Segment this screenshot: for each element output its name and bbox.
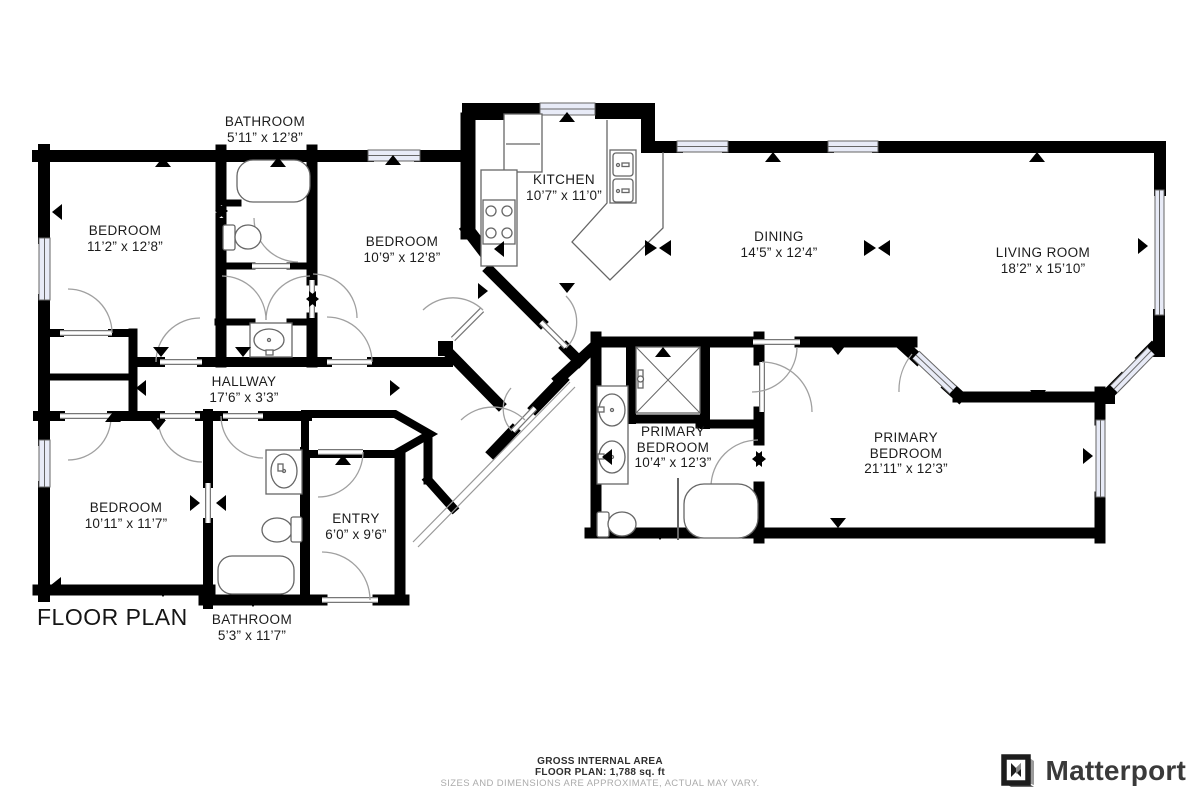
floor-plan-page: BATHROOM 5’11” x 12’8” BEDROOM 11’2” x 1… xyxy=(0,0,1200,800)
bathtub-icon xyxy=(684,484,758,538)
fridge-icon xyxy=(504,114,542,172)
room-dims: 18’2” x 15’10” xyxy=(996,261,1090,277)
room-label-primary-bedroom-large: PRIMARY BEDROOM 21’11” x 12’3” xyxy=(864,430,948,477)
room-label-bedroom-1: BEDROOM 11’2” x 12’8” xyxy=(87,223,163,254)
fixtures xyxy=(218,114,758,594)
room-dims: 5’3” x 11’7” xyxy=(212,628,292,644)
matterport-icon xyxy=(999,752,1037,790)
floor-plan-drawing xyxy=(0,0,1200,800)
room-label-entry: ENTRY 6’0” x 9’6” xyxy=(325,511,386,542)
room-label-kitchen: KITCHEN 10’7” x 11’0” xyxy=(526,172,602,203)
room-dims: 10’11” x 11’7” xyxy=(85,516,168,532)
room-name: LIVING ROOM xyxy=(996,245,1090,261)
page-title: FLOOR PLAN xyxy=(37,604,188,631)
room-label-bathroom-bottom: BATHROOM 5’3” x 11’7” xyxy=(212,612,292,643)
room-dims: 14’5” x 12’4” xyxy=(741,245,818,261)
room-dims: 5’11” x 12’8” xyxy=(225,130,305,146)
room-dims: 10’4” x 12’3” xyxy=(635,455,712,471)
room-label-living-room: LIVING ROOM 18’2” x 15’10” xyxy=(996,245,1090,276)
room-dims: 10’7” x 11’0” xyxy=(526,188,602,204)
room-name: BEDROOM xyxy=(87,223,163,239)
matterport-logo: Matterport xyxy=(999,752,1186,790)
toilet-icon xyxy=(597,512,609,537)
room-name: PRIMARY xyxy=(864,430,948,446)
room-dims: 10’9” x 12’8” xyxy=(364,250,441,266)
room-name: BEDROOM xyxy=(85,500,168,516)
room-name: BEDROOM xyxy=(364,234,441,250)
room-name: BEDROOM xyxy=(864,446,948,462)
bathtub-icon xyxy=(218,556,294,594)
room-label-dining: DINING 14’5” x 12’4” xyxy=(741,229,818,260)
room-label-bedroom-3: BEDROOM 10’11” x 11’7” xyxy=(85,500,168,531)
room-label-hallway: HALLWAY 17’6” x 3’3” xyxy=(209,374,278,405)
room-name: BEDROOM xyxy=(635,440,712,456)
room-label-bedroom-2: BEDROOM 10’9” x 12’8” xyxy=(364,234,441,265)
room-name: ENTRY xyxy=(325,511,386,527)
room-dims: 11’2” x 12’8” xyxy=(87,239,163,255)
room-name: DINING xyxy=(741,229,818,245)
room-name: PRIMARY xyxy=(635,424,712,440)
toilet-icon xyxy=(223,225,235,250)
room-label-primary-bedroom-small: PRIMARY BEDROOM 10’4” x 12’3” xyxy=(635,424,712,471)
matterport-wordmark: Matterport xyxy=(1046,755,1186,787)
room-dims: 21’11” x 12’3” xyxy=(864,461,948,477)
room-name: BATHROOM xyxy=(212,612,292,628)
room-name: KITCHEN xyxy=(526,172,602,188)
toilet-icon xyxy=(262,518,292,542)
room-name: HALLWAY xyxy=(209,374,278,390)
room-dims: 6’0” x 9’6” xyxy=(325,527,386,543)
room-label-bathroom-top: BATHROOM 5’11” x 12’8” xyxy=(225,114,305,145)
room-dims: 17’6” x 3’3” xyxy=(209,390,278,406)
room-name: BATHROOM xyxy=(225,114,305,130)
